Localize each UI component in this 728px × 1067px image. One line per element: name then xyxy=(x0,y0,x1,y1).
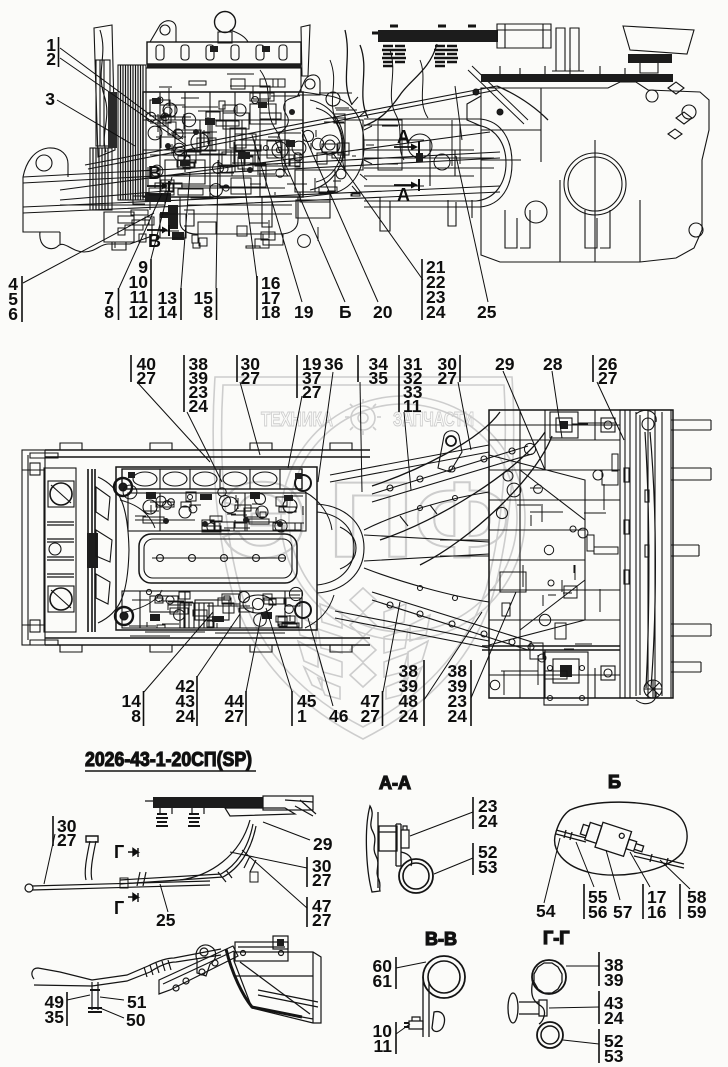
svg-text:27: 27 xyxy=(225,706,244,726)
svg-text:11: 11 xyxy=(374,1036,393,1056)
svg-text:8: 8 xyxy=(131,706,141,726)
svg-text:25: 25 xyxy=(156,910,176,930)
svg-text:24: 24 xyxy=(189,396,209,416)
svg-text:А: А xyxy=(397,185,410,205)
svg-text:29: 29 xyxy=(313,834,333,854)
svg-text:35: 35 xyxy=(369,368,389,388)
svg-text:Б: Б xyxy=(608,772,621,792)
svg-text:27: 27 xyxy=(361,706,380,726)
svg-text:39: 39 xyxy=(604,970,624,990)
svg-text:27: 27 xyxy=(312,910,331,930)
svg-text:20: 20 xyxy=(373,302,393,322)
svg-text:50: 50 xyxy=(126,1010,146,1030)
svg-text:27: 27 xyxy=(241,368,260,388)
svg-text:29: 29 xyxy=(495,354,515,374)
svg-text:В: В xyxy=(148,231,161,251)
svg-text:Г: Г xyxy=(114,898,124,918)
svg-text:2026-43-1-20СП(SP): 2026-43-1-20СП(SP) xyxy=(85,749,252,771)
svg-text:П: П xyxy=(328,459,414,580)
svg-text:Б: Б xyxy=(339,302,352,322)
svg-text:46: 46 xyxy=(329,706,349,726)
svg-text:24: 24 xyxy=(426,302,446,322)
svg-text:А-А: А-А xyxy=(379,773,411,793)
svg-text:36: 36 xyxy=(324,354,344,374)
svg-text:51: 51 xyxy=(127,992,147,1012)
svg-text:24: 24 xyxy=(604,1008,624,1028)
svg-text:57: 57 xyxy=(613,902,632,922)
svg-text:14: 14 xyxy=(158,302,178,322)
svg-text:59: 59 xyxy=(687,902,707,922)
svg-text:27: 27 xyxy=(438,368,457,388)
svg-text:53: 53 xyxy=(478,857,498,877)
svg-text:27: 27 xyxy=(57,830,76,850)
svg-text:Г-Г: Г-Г xyxy=(543,928,569,948)
svg-text:3: 3 xyxy=(45,89,55,109)
svg-text:24: 24 xyxy=(478,811,498,831)
svg-text:А: А xyxy=(397,127,410,147)
svg-text:27: 27 xyxy=(302,382,321,402)
svg-text:В: В xyxy=(148,163,161,183)
svg-text:24: 24 xyxy=(176,706,196,726)
svg-text:27: 27 xyxy=(137,368,156,388)
svg-text:53: 53 xyxy=(604,1046,624,1066)
svg-text:27: 27 xyxy=(598,368,617,388)
svg-text:12: 12 xyxy=(129,302,149,322)
svg-text:27: 27 xyxy=(312,870,331,890)
svg-text:2: 2 xyxy=(46,49,56,69)
svg-text:19: 19 xyxy=(294,302,314,322)
svg-text:18: 18 xyxy=(261,302,281,322)
svg-text:8: 8 xyxy=(104,302,114,322)
svg-text:61: 61 xyxy=(373,971,393,991)
svg-text:1: 1 xyxy=(297,706,307,726)
svg-text:35: 35 xyxy=(45,1007,65,1027)
svg-text:Г: Г xyxy=(114,842,124,862)
svg-text:11: 11 xyxy=(403,396,422,416)
svg-text:6: 6 xyxy=(8,304,18,324)
svg-text:24: 24 xyxy=(399,706,419,726)
svg-text:24: 24 xyxy=(448,706,468,726)
svg-text:28: 28 xyxy=(543,354,563,374)
svg-text:16: 16 xyxy=(647,902,667,922)
svg-text:54: 54 xyxy=(536,901,556,921)
svg-text:8: 8 xyxy=(203,302,213,322)
svg-text:56: 56 xyxy=(588,902,608,922)
svg-text:25: 25 xyxy=(477,302,497,322)
svg-text:В-В: В-В xyxy=(425,929,457,949)
